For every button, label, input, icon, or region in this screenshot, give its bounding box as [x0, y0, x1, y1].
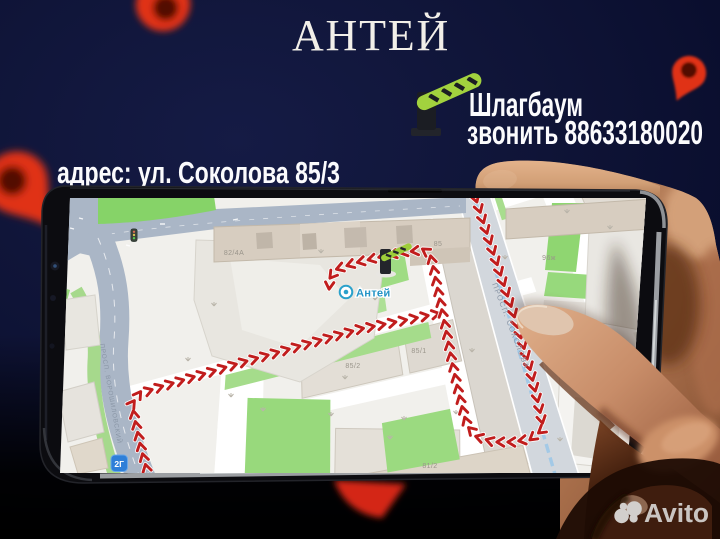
- svg-text:96ж: 96ж: [542, 255, 556, 262]
- svg-text:81/2: 81/2: [422, 463, 437, 470]
- svg-text:2Г: 2Г: [114, 459, 124, 469]
- svg-text:звонить 88633180020: звонить 88633180020: [467, 114, 703, 151]
- svg-text:85/1: 85/1: [411, 348, 426, 355]
- svg-text:Антей: Антей: [356, 288, 390, 300]
- svg-text:82/4А: 82/4А: [224, 250, 244, 257]
- svg-text:85/2: 85/2: [345, 363, 360, 370]
- svg-text:Avito: Avito: [644, 500, 709, 528]
- svg-text:85: 85: [434, 241, 443, 248]
- svg-text:адрес: ул. Соколова 85/3: адрес: ул. Соколова 85/3: [57, 155, 340, 190]
- svg-text:АНТЕЙ: АНТЕЙ: [292, 11, 450, 60]
